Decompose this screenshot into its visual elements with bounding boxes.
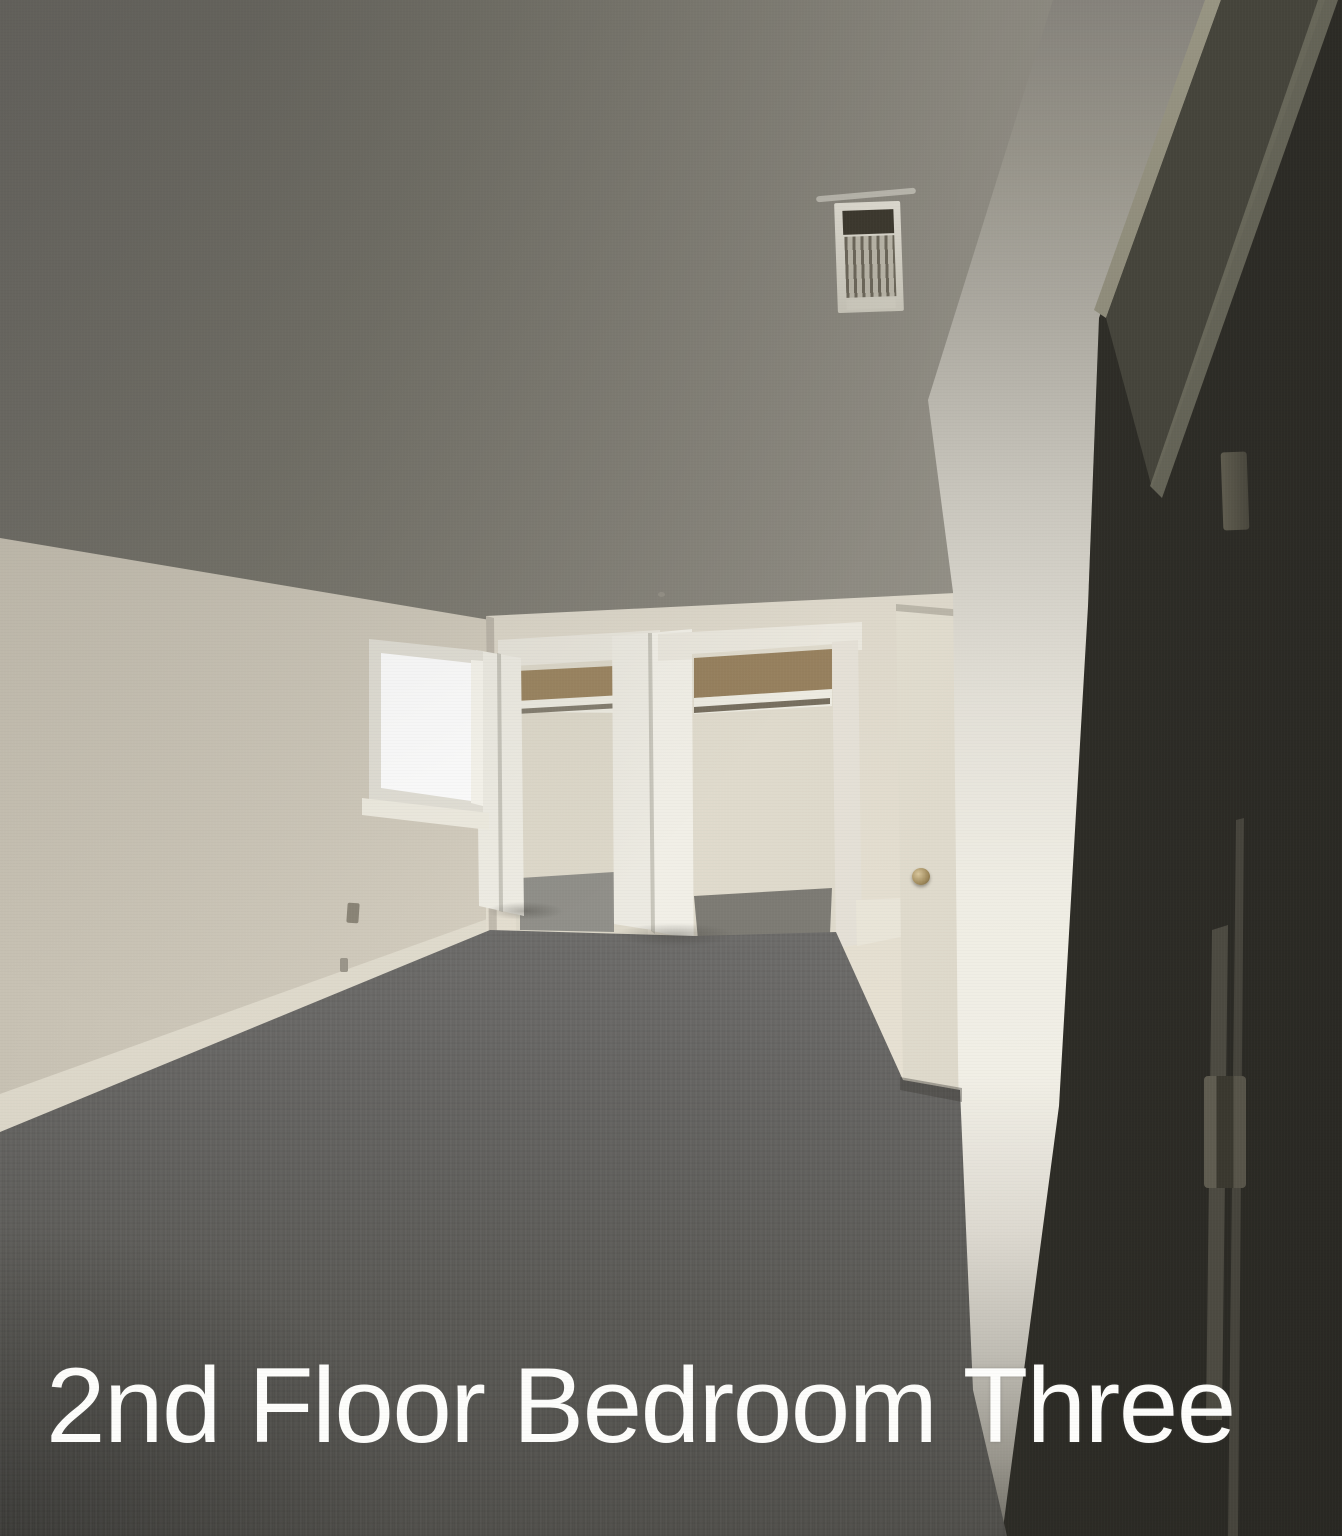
photo-grain-overlay	[0, 0, 1342, 1536]
bedroom-photo: 2nd Floor Bedroom Three	[0, 0, 1342, 1536]
